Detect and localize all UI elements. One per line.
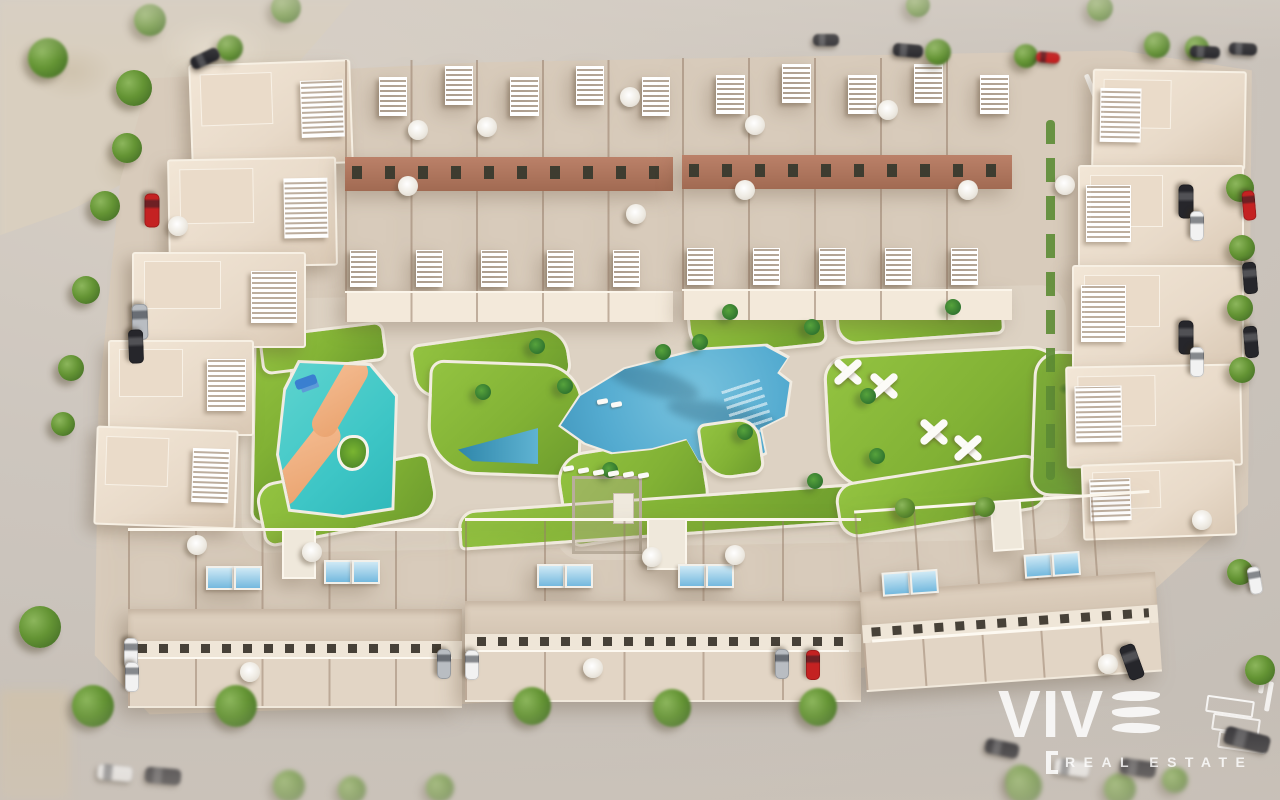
tree xyxy=(90,191,120,221)
tree xyxy=(1227,295,1253,321)
palm-tree xyxy=(860,388,876,404)
tree xyxy=(906,0,930,17)
tree xyxy=(426,774,454,800)
car xyxy=(892,42,923,58)
tree xyxy=(72,276,100,304)
sun-lounger xyxy=(578,467,590,474)
palm-tree xyxy=(475,384,491,400)
palm-tree xyxy=(692,334,708,350)
tree xyxy=(58,355,84,381)
car xyxy=(1246,565,1264,595)
parasol-umbrella xyxy=(187,535,207,555)
car xyxy=(465,650,479,680)
parasol-umbrella xyxy=(878,100,898,120)
car xyxy=(1036,50,1061,63)
tree xyxy=(1229,357,1255,383)
sun-lounger xyxy=(638,472,650,479)
parasol-umbrella xyxy=(408,120,428,140)
car xyxy=(813,34,839,46)
car xyxy=(1190,45,1221,59)
car xyxy=(1118,642,1145,681)
tree xyxy=(51,412,75,436)
car xyxy=(145,193,160,227)
parasol-umbrella xyxy=(1192,510,1212,530)
vive-logo-e-bars xyxy=(1112,691,1160,739)
car xyxy=(775,649,789,679)
car xyxy=(1190,347,1204,377)
parasol-umbrella xyxy=(735,180,755,200)
tree xyxy=(925,39,951,65)
parasol-umbrella xyxy=(1055,175,1075,195)
parasol-umbrella xyxy=(168,216,188,236)
parasol-umbrella xyxy=(725,545,745,565)
tree xyxy=(19,606,61,648)
palm-tree xyxy=(869,448,885,464)
palm-tree xyxy=(722,304,738,320)
parasol-umbrella xyxy=(583,658,603,678)
parasol-umbrella xyxy=(1098,654,1118,674)
palm-tree xyxy=(945,299,961,315)
tree xyxy=(653,689,691,727)
tree xyxy=(1144,32,1170,58)
tree xyxy=(1229,235,1255,261)
parasol-umbrella xyxy=(302,542,322,562)
parasol-umbrella xyxy=(240,662,260,682)
tree xyxy=(513,687,551,725)
sun-lounger xyxy=(593,469,605,476)
tree xyxy=(338,776,366,800)
aerial-development-render: VIV REAL ESTATE xyxy=(0,0,1280,800)
tree xyxy=(1104,773,1136,800)
tree xyxy=(134,4,166,36)
tree xyxy=(975,497,995,517)
palm-tree xyxy=(737,424,753,440)
car xyxy=(806,650,820,680)
car xyxy=(128,329,144,364)
car xyxy=(437,649,451,679)
tree xyxy=(72,685,114,727)
tagline-text: REAL ESTATE xyxy=(1065,754,1253,770)
car xyxy=(1190,211,1204,241)
tree xyxy=(215,685,257,727)
parasol-umbrella xyxy=(398,176,418,196)
parasol-umbrella xyxy=(477,117,497,137)
palm-tree xyxy=(655,344,671,360)
parasol-umbrella xyxy=(642,547,662,567)
sun-lounger xyxy=(608,470,620,477)
tree xyxy=(1014,44,1038,68)
parasol-umbrella xyxy=(958,180,978,200)
car xyxy=(189,46,222,70)
parasol-umbrella xyxy=(745,115,765,135)
vive-tagline: REAL ESTATE xyxy=(1046,751,1253,774)
tree xyxy=(112,133,142,163)
sun-lounger xyxy=(563,465,575,472)
tree xyxy=(273,770,305,800)
car xyxy=(1243,325,1260,358)
car xyxy=(96,763,133,782)
car xyxy=(1229,42,1258,55)
palm-tree xyxy=(804,319,820,335)
palm-tree xyxy=(529,338,545,354)
tree xyxy=(28,38,68,78)
parasol-umbrella xyxy=(620,87,640,107)
sun-lounger xyxy=(623,471,635,478)
palm-tree xyxy=(807,473,823,489)
car xyxy=(125,662,139,692)
tree xyxy=(799,688,837,726)
palm-tree xyxy=(557,378,573,394)
car xyxy=(1241,189,1257,220)
tree xyxy=(217,35,243,61)
sun-lounger xyxy=(611,401,623,408)
vive-logo-text: VIV xyxy=(998,683,1104,746)
tree xyxy=(1245,655,1275,685)
tree xyxy=(116,70,152,106)
tree xyxy=(1087,0,1113,21)
vive-watermark: VIV REAL ESTATE xyxy=(998,684,1253,774)
tree xyxy=(271,0,301,23)
parasol-umbrella xyxy=(626,204,646,224)
tree xyxy=(895,498,915,518)
car xyxy=(1242,261,1259,294)
sun-lounger xyxy=(597,398,609,405)
car xyxy=(144,766,181,785)
tagline-bracket-icon xyxy=(1046,751,1058,774)
